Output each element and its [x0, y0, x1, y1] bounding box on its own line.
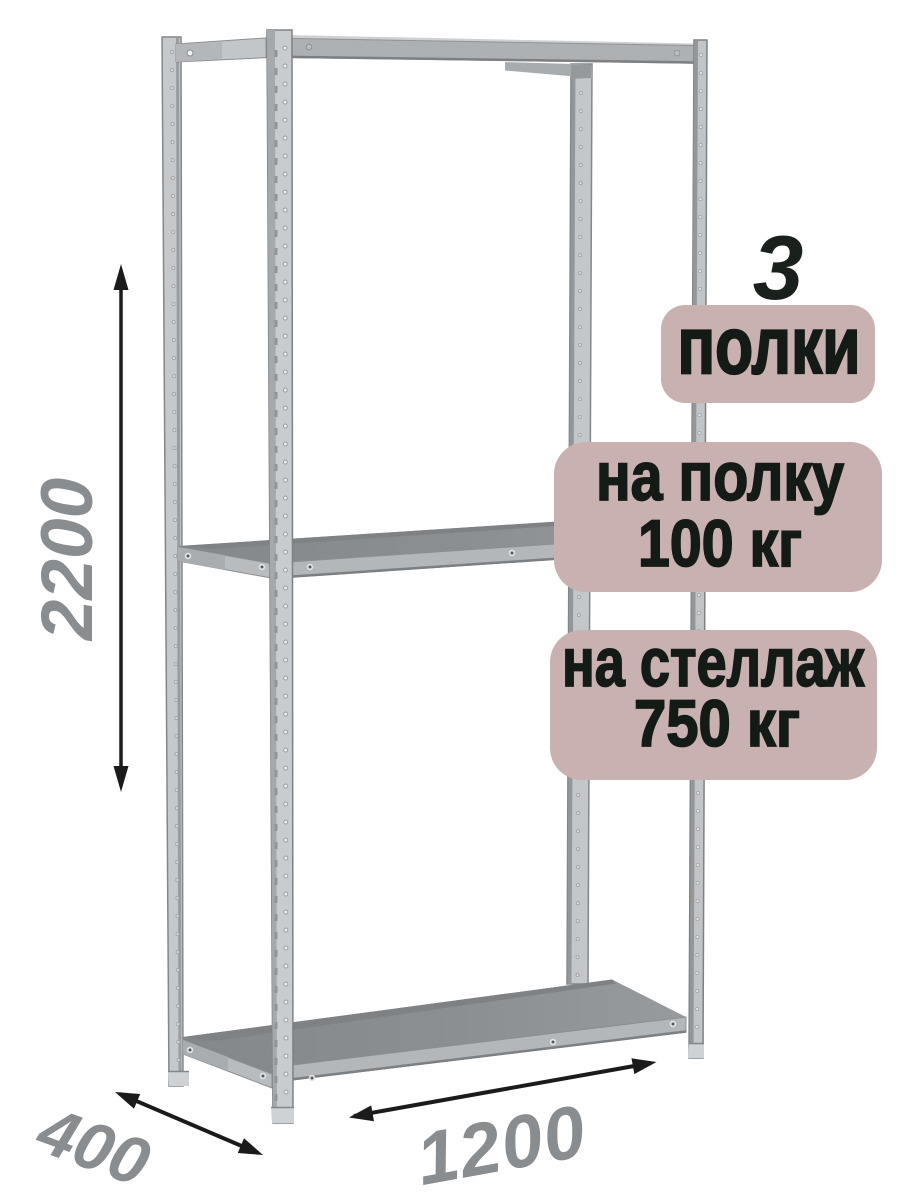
svg-text:на полку: на полку — [596, 438, 844, 515]
svg-text:750 кг: 750 кг — [634, 686, 800, 760]
svg-text:2200: 2200 — [27, 478, 108, 642]
svg-text:полки: полки — [678, 301, 861, 391]
svg-text:100 кг: 100 кг — [638, 506, 802, 580]
